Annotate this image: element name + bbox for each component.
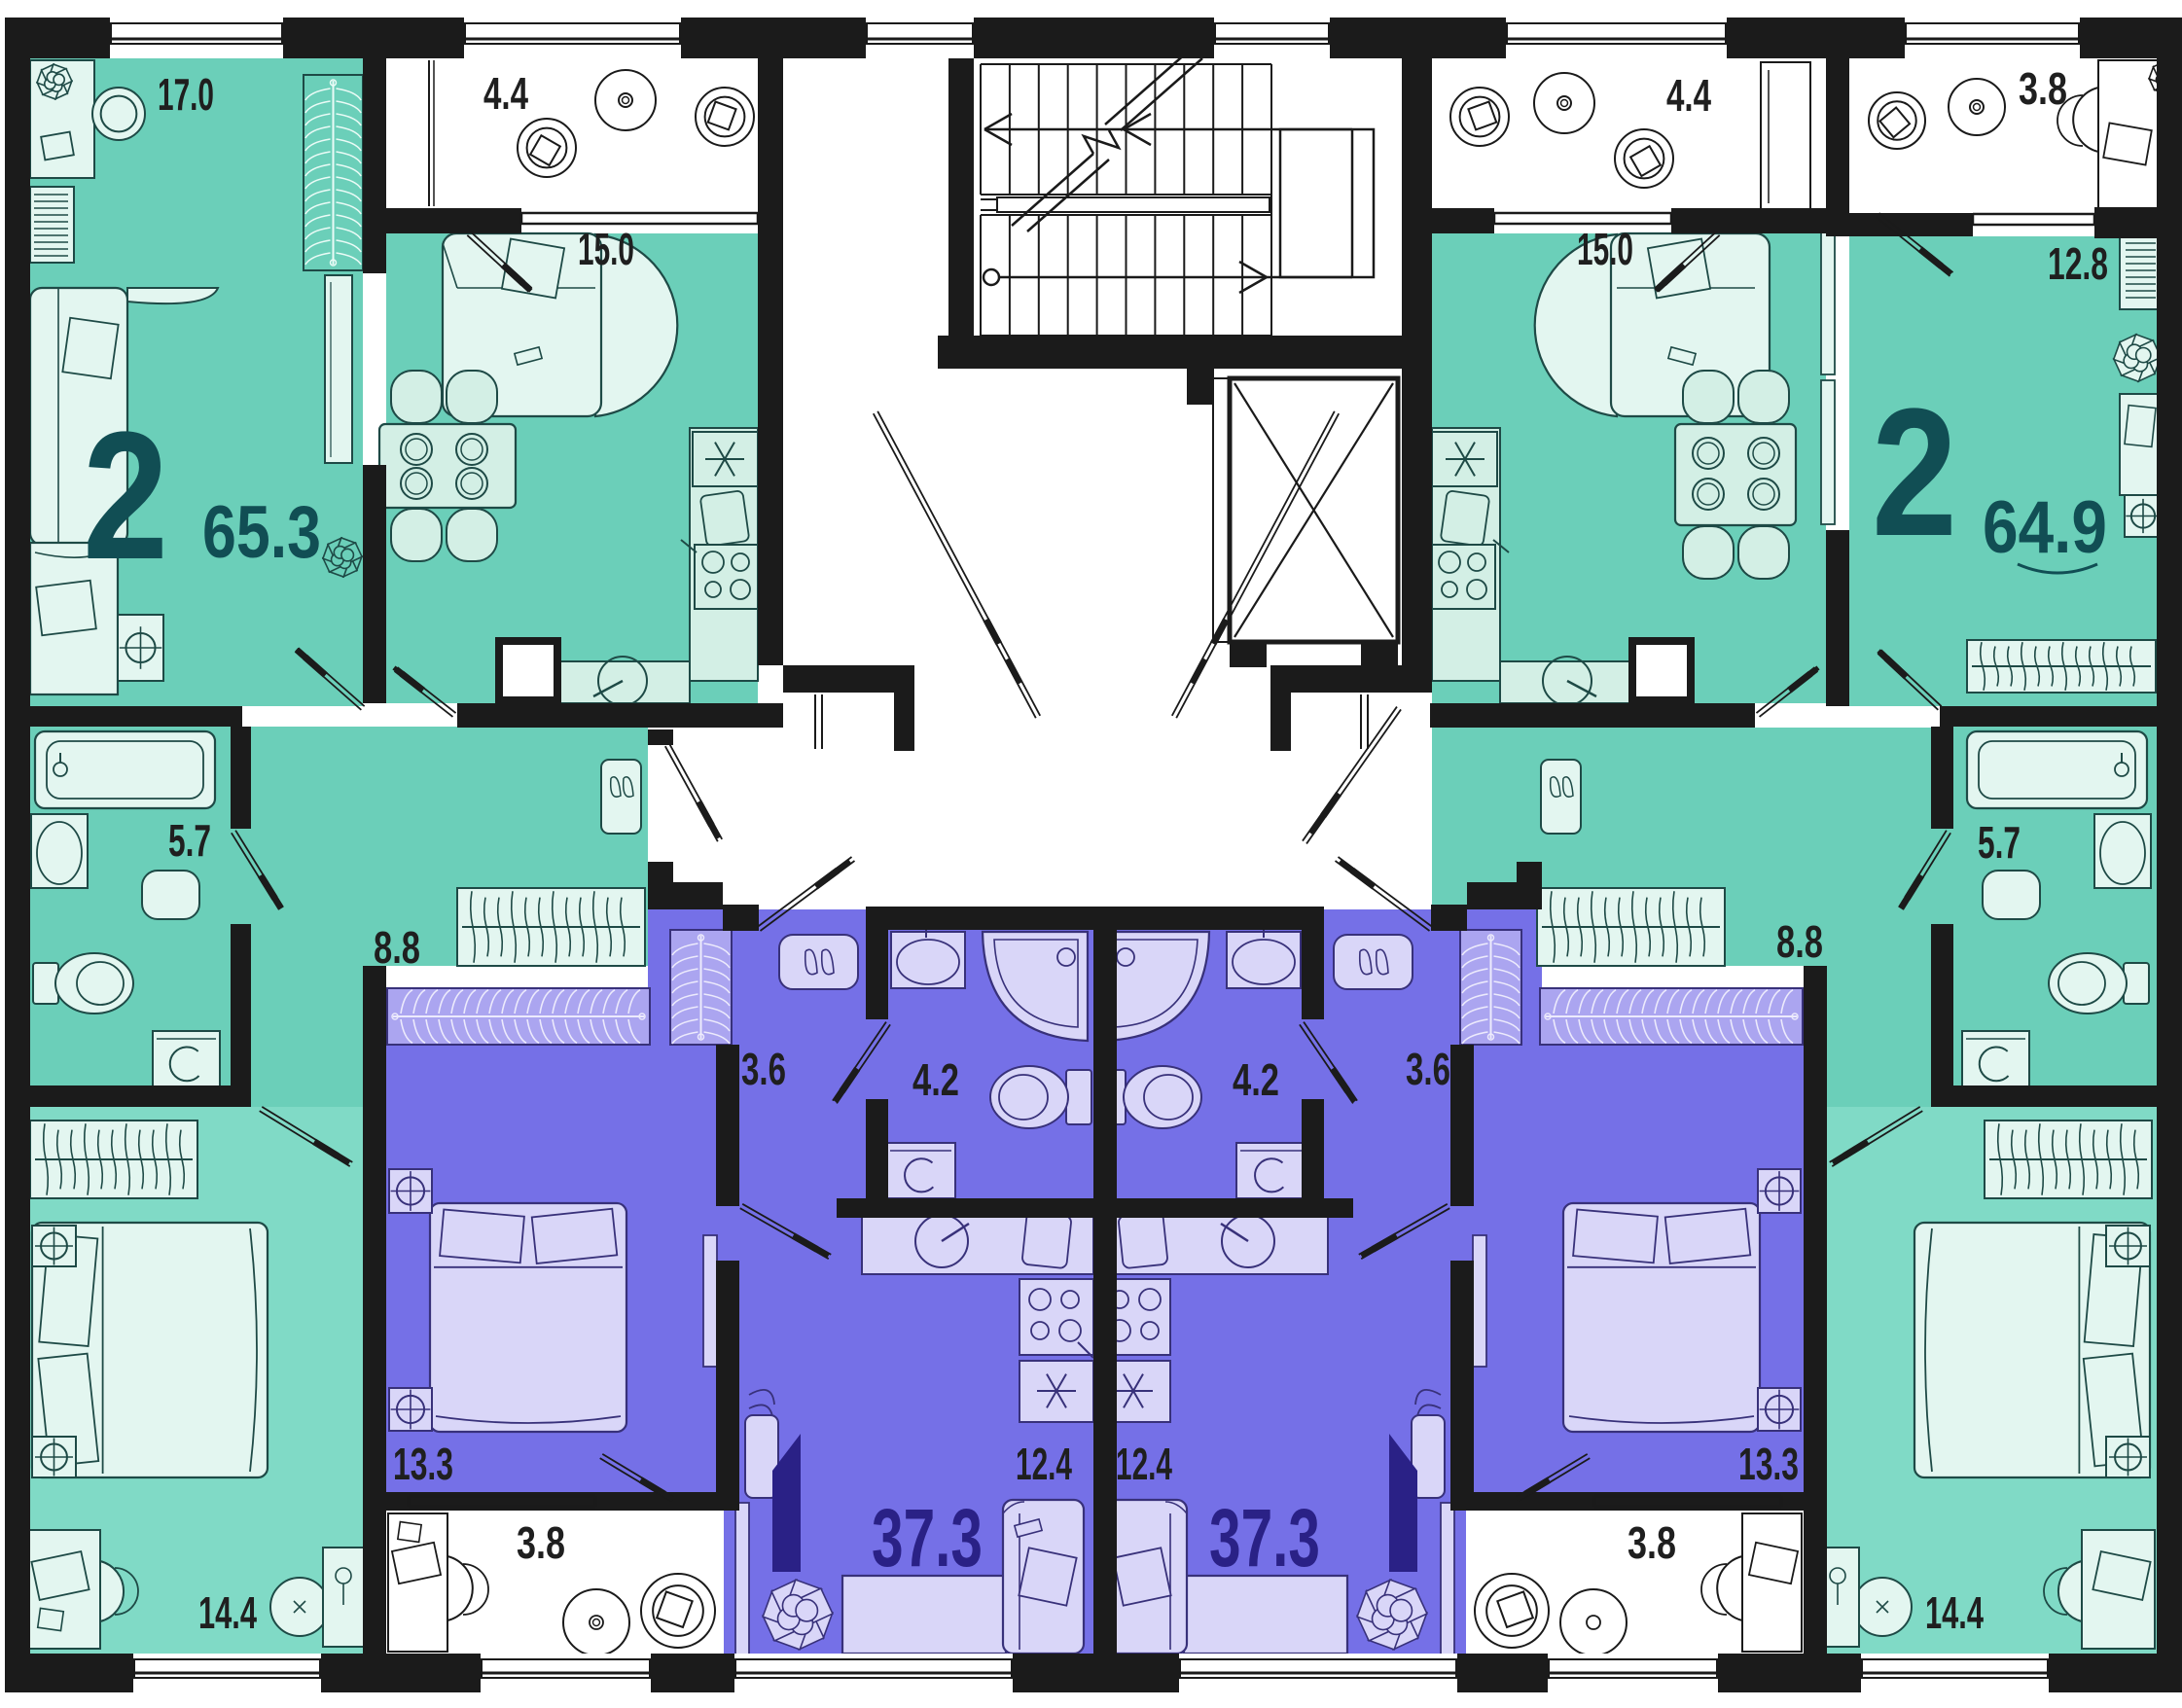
svg-text:5.7: 5.7	[168, 815, 211, 866]
svg-text:2: 2	[83, 394, 168, 597]
svg-text:65.3: 65.3	[202, 491, 321, 574]
svg-text:37.3: 37.3	[1209, 1492, 1320, 1583]
svg-text:12.4: 12.4	[1016, 1439, 1072, 1489]
svg-text:3.6: 3.6	[741, 1044, 786, 1094]
svg-text:12.4: 12.4	[1116, 1439, 1172, 1489]
svg-text:5.7: 5.7	[1978, 817, 2021, 868]
svg-text:3.6: 3.6	[1406, 1044, 1450, 1094]
svg-text:8.8: 8.8	[374, 922, 420, 973]
svg-text:37.3: 37.3	[872, 1492, 983, 1583]
svg-text:4.4: 4.4	[1666, 70, 1711, 121]
svg-text:13.3: 13.3	[1738, 1439, 1799, 1489]
svg-text:8.8: 8.8	[1776, 916, 1823, 967]
svg-text:15.0: 15.0	[1577, 224, 1633, 274]
svg-text:14.4: 14.4	[1925, 1587, 1984, 1638]
svg-text:64.9: 64.9	[1983, 486, 2107, 569]
svg-text:2: 2	[1872, 371, 1957, 574]
svg-text:14.4: 14.4	[198, 1587, 257, 1638]
svg-text:3.8: 3.8	[1628, 1517, 1676, 1568]
svg-text:4.4: 4.4	[483, 68, 528, 119]
svg-text:17.0: 17.0	[158, 69, 214, 120]
svg-text:4.2: 4.2	[912, 1054, 959, 1105]
svg-text:3.8: 3.8	[2019, 63, 2067, 114]
svg-text:13.3: 13.3	[393, 1439, 453, 1489]
svg-text:3.8: 3.8	[517, 1517, 565, 1568]
svg-text:12.8: 12.8	[2048, 238, 2108, 289]
svg-text:15.0: 15.0	[578, 224, 634, 274]
svg-text:4.2: 4.2	[1233, 1054, 1279, 1105]
